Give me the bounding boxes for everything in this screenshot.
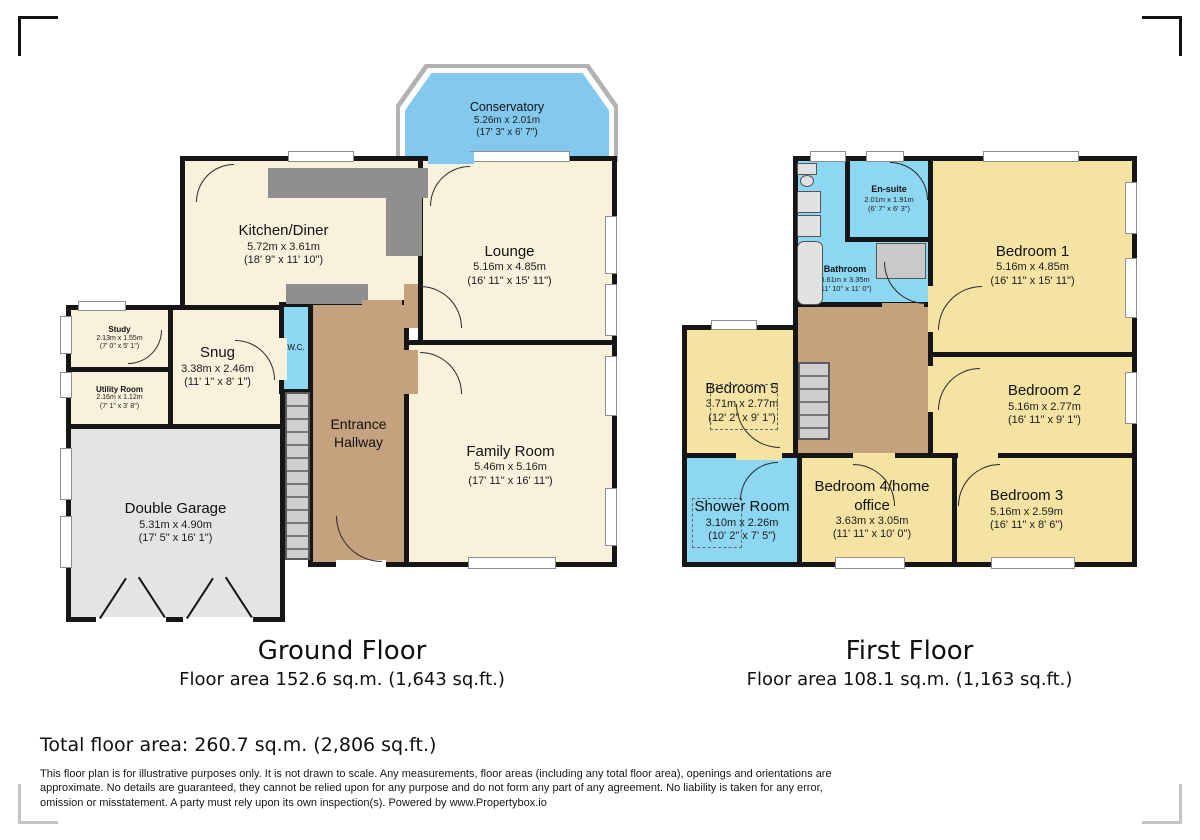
- room-dim-metric: 5.26m x 2.01m: [396, 115, 618, 127]
- door-gap-conservatory: [428, 152, 474, 164]
- window-lounge-conservatory: [470, 151, 570, 162]
- garage-door-gap-1: [96, 617, 166, 625]
- door-gap-bathroom: [882, 303, 924, 314]
- room-name: Entrance Hallway: [313, 416, 404, 450]
- room-dim-imperial: (16' 11" x 9' 1"): [1008, 414, 1081, 427]
- total-floor-area: Total floor area: 260.7 sq.m. (2,806 sq.…: [40, 734, 436, 756]
- room-dim-imperial: (7' 1" x 3' 8"): [96, 403, 143, 412]
- room-label-lounge: Lounge 5.16m x 4.85m (16' 11" x 15' 11"): [467, 243, 551, 288]
- room-dim-imperial: (11' 11" x 10' 0"): [809, 528, 935, 541]
- door-gap-bedroom5: [736, 448, 782, 460]
- sink-2: [797, 215, 821, 237]
- room-name: Double Garage: [125, 500, 227, 518]
- room-name: Utility Room: [96, 385, 143, 395]
- first-floor-area: Floor area 108.1 sq.m. (1,163 sq.ft.): [682, 669, 1137, 690]
- room-label-kitchen-diner: Kitchen/Diner 5.72m x 3.61m (18' 9" x 11…: [238, 222, 328, 267]
- room-label-utility: Utility Room 2.16m x 1.12m (7' 1" x 3' 8…: [96, 385, 143, 412]
- ground-floor-title: Ground Floor: [66, 636, 618, 666]
- room-label-bedroom-3: Bedroom 3 5.16m x 2.59m (16' 11" x 8' 6"…: [990, 487, 1063, 532]
- room-dim-imperial: (16' 11" x 8' 6"): [990, 519, 1063, 532]
- disclaimer-text: This floor plan is for illustrative purp…: [40, 767, 845, 810]
- room-dim-imperial: (18' 9" x 11' 10"): [238, 254, 328, 267]
- room-name: Family Room: [466, 443, 554, 461]
- shower-outline: [692, 498, 742, 548]
- kitchen-counter-top: [268, 168, 428, 198]
- window-study-top: [78, 301, 126, 311]
- room-conservatory-frame: Conservatory 5.26m x 2.01m (17' 3" x 6' …: [396, 64, 618, 162]
- window-bathroom-top: [810, 151, 846, 162]
- room-dim-metric: 5.16m x 4.85m: [990, 261, 1074, 274]
- room-dim-metric: 2.16m x 1.12m: [96, 394, 143, 403]
- window-bedroom1-right-2: [1125, 258, 1137, 318]
- room-label-bedroom-2: Bedroom 2 5.16m x 2.77m (16' 11" x 9' 1"…: [1008, 382, 1081, 427]
- kitchen-counter-side: [386, 198, 422, 256]
- door-gap-bedroom1: [928, 286, 938, 332]
- room-name: Kitchen/Diner: [238, 222, 328, 240]
- room-dim-imperial: (11' 10" x 11' 0"): [818, 284, 871, 293]
- room-dim-metric: 3.61m x 3.35m: [818, 275, 871, 284]
- room-name: Bedroom 3: [990, 487, 1063, 505]
- room-name: Conservatory: [396, 100, 618, 115]
- room-name: W.C.: [287, 343, 304, 353]
- stairs-ground: [285, 392, 310, 560]
- stairs-first: [798, 362, 830, 440]
- room-dim-imperial: (6' 7" x 6' 3"): [864, 204, 914, 213]
- room-double-garage: Double Garage 5.31m x 4.90m (17' 5" x 16…: [66, 424, 285, 622]
- window-garage-left-2: [60, 516, 72, 568]
- room-name: Bathroom: [818, 264, 871, 275]
- garage-door-gap-2: [183, 617, 253, 625]
- ground-floor-area: Floor area 152.6 sq.m. (1,643 sq.ft.): [66, 669, 618, 690]
- window-bedroom1-top: [983, 151, 1079, 162]
- crop-mark-top-right: [1142, 16, 1182, 56]
- door-gap-bedroom4: [853, 453, 895, 464]
- window-utility-left: [60, 372, 72, 398]
- room-label-wc: W.C.: [287, 343, 304, 353]
- door-gap-snug: [275, 338, 287, 380]
- door-gap-bedroom3: [958, 453, 998, 464]
- room-bedroom-4: Bedroom 4/home office 3.63m x 3.05m (11'…: [797, 453, 957, 567]
- window-lounge-right-2: [605, 284, 617, 336]
- room-dim-metric: 3.63m x 3.05m: [809, 515, 935, 528]
- opening-hall-kitchen: [362, 300, 402, 312]
- window-family-right-2: [605, 488, 617, 546]
- room-dim-imperial: (17' 11" x 16' 11"): [466, 475, 554, 488]
- window-ensuite-top: [866, 151, 904, 162]
- room-dim-metric: 5.16m x 2.77m: [1008, 401, 1081, 414]
- window-bedroom4-bottom: [835, 557, 905, 569]
- ground-floor-caption: Ground Floor Floor area 152.6 sq.m. (1,6…: [66, 636, 618, 690]
- room-dim-metric: 5.16m x 2.59m: [990, 506, 1063, 519]
- room-label-bathroom: Bathroom 3.61m x 3.35m (11' 10" x 11' 0"…: [818, 264, 871, 293]
- room-utility: Utility Room 2.16m x 1.12m (7' 1" x 3' 8…: [66, 367, 173, 429]
- room-label-conservatory: Conservatory 5.26m x 2.01m (17' 3" x 6' …: [396, 100, 618, 140]
- room-label-double-garage: Double Garage 5.31m x 4.90m (17' 5" x 16…: [125, 500, 227, 545]
- room-dim-imperial: (17' 5" x 16' 1"): [125, 532, 227, 545]
- kitchen-counter-lower: [286, 284, 368, 304]
- floorplan-canvas: Conservatory 5.26m x 2.01m (17' 3" x 6' …: [0, 0, 1200, 840]
- window-study-left: [60, 316, 72, 354]
- toilet-bowl: [800, 175, 814, 187]
- door-gap-lounge: [404, 284, 418, 328]
- room-dim-metric: 5.46m x 5.16m: [466, 461, 554, 474]
- window-garage-left-1: [60, 448, 72, 500]
- room-label-family-room: Family Room 5.46m x 5.16m (17' 11" x 16'…: [466, 443, 554, 488]
- toilet-cistern: [797, 163, 817, 175]
- room-dim-metric: 5.16m x 4.85m: [467, 261, 551, 274]
- room-dim-imperial: (17' 3" x 6' 7"): [396, 127, 618, 139]
- window-family-bottom: [468, 557, 556, 569]
- room-dim-metric: 5.72m x 3.61m: [238, 241, 328, 254]
- crop-mark-bottom-right: [1142, 784, 1182, 824]
- room-dim-imperial: (16' 11" x 15' 11"): [990, 275, 1074, 288]
- room-name: Bedroom 1: [990, 243, 1074, 261]
- crop-mark-top-left: [18, 16, 58, 56]
- door-gap-family: [404, 350, 418, 394]
- window-bedroom5-top: [711, 320, 757, 330]
- sink-1: [797, 191, 821, 213]
- window-family-right-1: [605, 356, 617, 416]
- room-label-entrance-hallway: Entrance Hallway: [313, 416, 404, 450]
- window-bedroom1-right-1: [1125, 182, 1137, 234]
- window-kitchen-top: [288, 151, 354, 162]
- room-name: Bedroom 2: [1008, 382, 1081, 400]
- room-dim-metric: 5.31m x 4.90m: [125, 519, 227, 532]
- first-floor-title: First Floor: [682, 636, 1137, 666]
- room-name: Lounge: [467, 243, 551, 261]
- first-floor-caption: First Floor Floor area 108.1 sq.m. (1,16…: [682, 636, 1137, 690]
- window-bedroom2-right: [1125, 372, 1137, 424]
- door-gap-bedroom2: [928, 366, 938, 412]
- bathtub: [797, 241, 823, 305]
- window-bedroom3-bottom: [991, 557, 1075, 569]
- room-label-bedroom-1: Bedroom 1 5.16m x 4.85m (16' 11" x 15' 1…: [990, 243, 1074, 288]
- room-dim-imperial: (16' 11" x 15' 11"): [467, 275, 551, 288]
- window-lounge-right-1: [605, 216, 617, 274]
